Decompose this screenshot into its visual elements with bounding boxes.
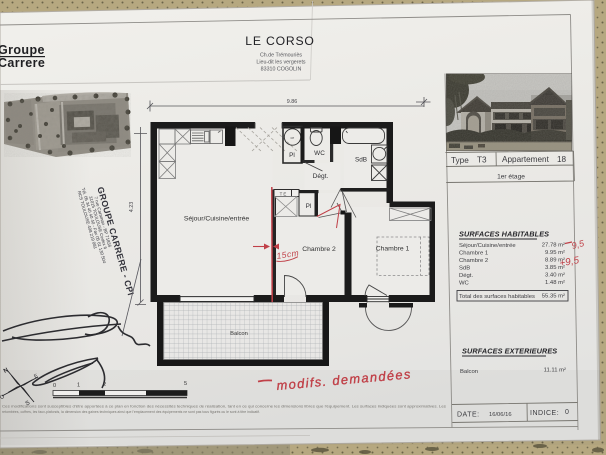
svg-text:Type: Type: [451, 156, 469, 165]
svg-text:Appartement: Appartement: [502, 155, 550, 164]
svg-text:SdB: SdB: [459, 265, 470, 271]
svg-text:Séjour/Cuisine/entrée: Séjour/Cuisine/entrée: [459, 243, 516, 249]
svg-text:3.40 m²: 3.40 m²: [545, 272, 565, 278]
svg-text:Groupe: Groupe: [0, 43, 45, 57]
svg-text:0: 0: [53, 383, 56, 389]
svg-text:T E: T E: [280, 191, 287, 196]
svg-text:1: 1: [77, 383, 80, 389]
svg-text:83310 COGOLIN: 83310 COGOLIN: [261, 67, 302, 73]
svg-text:27.78 m²: 27.78 m²: [542, 242, 565, 248]
svg-text:SURFACES HABITABLES: SURFACES HABITABLES: [459, 230, 549, 239]
svg-text:Total des surfaces habitables: Total des surfaces habitables: [459, 294, 535, 300]
svg-text:5: 5: [184, 381, 187, 387]
svg-text:DATE:: DATE:: [457, 412, 480, 419]
svg-text:ce: ce: [291, 136, 295, 140]
svg-text:Balcon: Balcon: [460, 369, 478, 375]
svg-text:SURFACES EXTERIEURES: SURFACES EXTERIEURES: [462, 347, 557, 356]
svg-text:Chambre 2: Chambre 2: [459, 258, 488, 264]
svg-text:Ch.de Trémouriès: Ch.de Trémouriès: [260, 53, 302, 59]
svg-text:Dégt.: Dégt.: [313, 173, 329, 180]
svg-text:4.23: 4.23: [129, 202, 135, 213]
svg-text:Ces modifications sont suscept: Ces modifications sont susceptibles d'êt…: [2, 405, 446, 409]
svg-text:Chambre 2: Chambre 2: [302, 246, 336, 253]
svg-text:11.11 m²: 11.11 m²: [544, 368, 566, 374]
svg-text:18: 18: [557, 155, 567, 164]
svg-text:LE CORSO: LE CORSO: [245, 34, 314, 48]
svg-text:9.95 m²: 9.95 m²: [545, 250, 565, 256]
svg-text:Dégt.: Dégt.: [459, 273, 473, 279]
svg-text:Pl: Pl: [289, 152, 295, 159]
svg-text:T3: T3: [477, 156, 487, 165]
svg-text:9.86: 9.86: [287, 99, 298, 105]
svg-text:16/06/16: 16/06/16: [489, 412, 512, 418]
svg-text:1.48 m²: 1.48 m²: [545, 280, 565, 286]
svg-text:Carrere: Carrere: [0, 56, 45, 70]
svg-text:INDICE:: INDICE:: [530, 410, 559, 417]
svg-text:Pl: Pl: [306, 203, 312, 210]
svg-text:Séjour/Cuisine/entrée: Séjour/Cuisine/entrée: [184, 216, 250, 223]
svg-text:WC: WC: [314, 150, 325, 157]
svg-text:Balcon: Balcon: [230, 331, 248, 337]
svg-text:retombées, coffres, les faux-p: retombées, coffres, les faux-plafonds, l…: [2, 410, 260, 414]
svg-text:Chambre 1: Chambre 1: [459, 250, 488, 256]
svg-text:2: 2: [103, 382, 106, 388]
svg-text:WC: WC: [459, 280, 470, 286]
svg-text:Lieu-dit les vergerets: Lieu-dit les vergerets: [256, 60, 306, 66]
svg-text:SdB: SdB: [355, 157, 367, 164]
svg-text:55.35 m²: 55.35 m²: [542, 294, 565, 300]
svg-text:0: 0: [565, 409, 569, 416]
svg-text:1er étage: 1er étage: [497, 174, 525, 181]
svg-text:Chambre 1: Chambre 1: [376, 246, 410, 253]
